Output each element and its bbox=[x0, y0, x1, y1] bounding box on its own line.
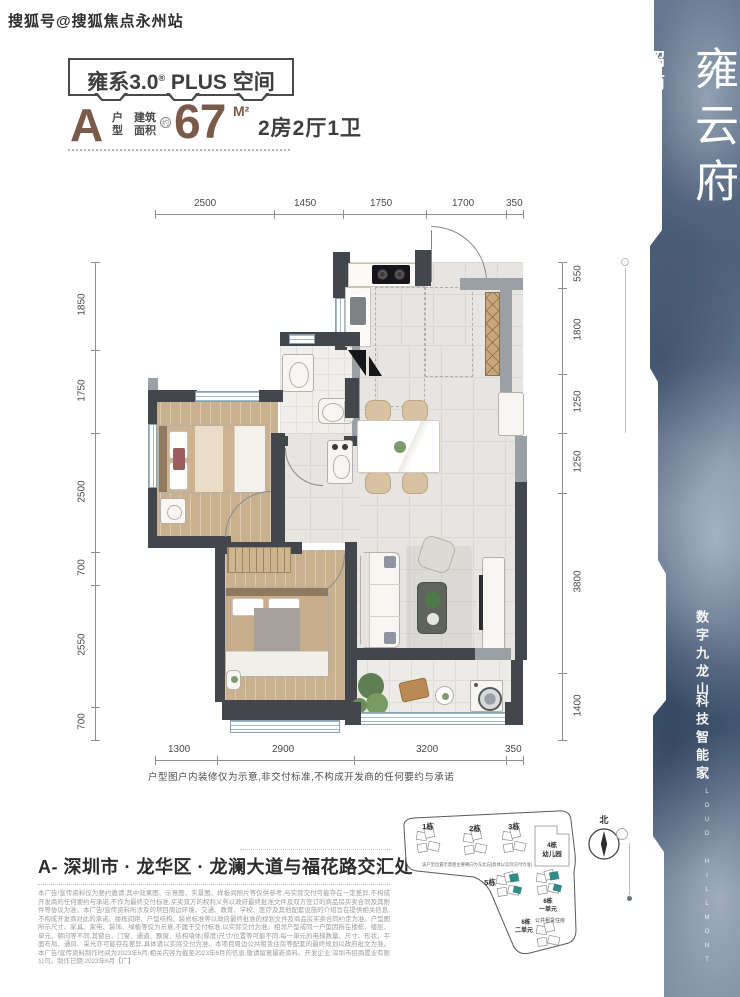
wall bbox=[148, 402, 157, 424]
tv-console bbox=[482, 557, 505, 650]
dim-label: 1750 bbox=[370, 198, 392, 209]
building-4-label: 4栋 bbox=[547, 840, 558, 849]
brand-banner: 招商 ❖ CLOUD HILLMONT 雍云府 数字九龙山 科技智能家 CLOU… bbox=[628, 0, 740, 997]
dim-label: 700 bbox=[77, 700, 88, 744]
address-divider bbox=[240, 849, 390, 850]
brand-en-line1: CLOUD bbox=[640, 122, 646, 157]
bathroom-window bbox=[289, 334, 315, 344]
brand-name: 招商 bbox=[642, 50, 667, 96]
dim-label: 1700 bbox=[452, 198, 474, 209]
wall-gray bbox=[500, 290, 512, 392]
dim-label: 550 bbox=[573, 252, 584, 296]
north-arrow-icon bbox=[589, 829, 619, 859]
wall bbox=[515, 482, 527, 660]
deco-line bbox=[625, 268, 626, 433]
series-title: 雍系3.0® PLUS 空间 bbox=[87, 71, 275, 94]
brand-en-line2: HILLMONT bbox=[650, 122, 656, 178]
balcony-table bbox=[435, 686, 454, 705]
building-2-label: 2栋 bbox=[469, 823, 481, 833]
washing-machine bbox=[470, 680, 503, 712]
dim-label: 2550 bbox=[77, 623, 88, 667]
wall-gray bbox=[515, 436, 527, 482]
deco-line bbox=[629, 843, 630, 895]
deco-circle bbox=[621, 258, 629, 266]
plan-disclaimer: 户型图户内装修仅为示意,非交付标准,不构成开发商的任何要约与承诺 bbox=[148, 769, 454, 783]
deco-circle bbox=[616, 828, 628, 840]
wall bbox=[271, 433, 285, 543]
tall-cabinet bbox=[485, 292, 500, 376]
dim-label: 1400 bbox=[573, 684, 584, 728]
building-6a-sublabel: 一单元 bbox=[539, 905, 557, 913]
ceiling-dashed-outline bbox=[375, 287, 425, 407]
building-1-label: 1栋 bbox=[422, 821, 434, 831]
slogan-line1: 数字九龙山 bbox=[692, 610, 711, 700]
nightstand bbox=[160, 498, 186, 524]
wall bbox=[345, 702, 361, 725]
unit-type-label: 户型 bbox=[112, 112, 123, 138]
dim-label: 1750 bbox=[77, 369, 88, 413]
wall bbox=[505, 702, 523, 725]
building-6b-label: 6栋 bbox=[521, 918, 530, 926]
wall bbox=[259, 390, 283, 402]
ceiling-dashed-outline bbox=[425, 287, 473, 377]
rooms-summary: 2房2厅1卫 bbox=[258, 112, 362, 142]
north-label: 北 bbox=[599, 814, 608, 825]
balcony-window bbox=[360, 712, 507, 725]
bedside-stool bbox=[226, 670, 241, 690]
dim-label: 2500 bbox=[194, 198, 216, 209]
bedroom2-window bbox=[195, 391, 261, 402]
dim-label: 1250 bbox=[573, 380, 584, 424]
building-5-label: 5栋 bbox=[484, 877, 496, 887]
legal-text: 本广告/宣传资料仅为要约邀请,其中效果图、示意图、实景图、样板间照片等仅供参考,… bbox=[38, 890, 390, 967]
coffee-table bbox=[417, 582, 447, 634]
header-divider bbox=[68, 149, 290, 151]
kitchen-sink bbox=[348, 295, 368, 327]
dining-chair bbox=[402, 400, 428, 422]
slogan-line2: 科技智能家 bbox=[692, 694, 711, 784]
dim-label: 3800 bbox=[573, 560, 584, 604]
building-4-sublabel: 幼儿园 bbox=[542, 849, 562, 858]
dining-chair bbox=[365, 472, 391, 494]
bed bbox=[158, 425, 266, 493]
stove bbox=[372, 265, 410, 284]
dim-line-top bbox=[155, 214, 523, 215]
dim-label: 350 bbox=[505, 744, 522, 755]
wall bbox=[345, 378, 359, 418]
building-3-label: 3栋 bbox=[508, 821, 520, 831]
wall-gray bbox=[475, 648, 511, 660]
project-name: 雍云府 bbox=[680, 46, 740, 214]
deco-dot bbox=[627, 896, 632, 901]
dim-label: 1300 bbox=[168, 744, 190, 755]
master-window bbox=[230, 720, 340, 733]
dim-label: 1450 bbox=[294, 198, 316, 209]
dining-chair bbox=[365, 400, 391, 422]
dim-label: 1800 bbox=[573, 308, 584, 352]
dim-line-left bbox=[95, 262, 96, 740]
wardrobe bbox=[227, 547, 291, 573]
master-bed bbox=[225, 587, 329, 677]
area-label: 建筑面积 bbox=[134, 112, 156, 138]
dim-label: 1250 bbox=[573, 440, 584, 484]
series-title-box: 雍系3.0® PLUS 空间 bbox=[68, 58, 294, 96]
shoe-cabinet bbox=[498, 392, 524, 436]
dim-label: 700 bbox=[77, 546, 88, 590]
address: A- 深圳市 · 龙华区 · 龙澜大道与福花路交汇处 bbox=[38, 853, 413, 879]
sofa bbox=[360, 552, 400, 648]
dining-table bbox=[357, 420, 440, 473]
address-divider bbox=[38, 884, 390, 885]
bedroom2-side-window bbox=[148, 424, 157, 488]
site-map: 1栋 2栋 3栋 4栋 幼儿园 5栋 6栋 一单元 公共租赁住房 6栋 二单元 … bbox=[390, 798, 625, 966]
building-6b-sublabel: 二单元 bbox=[515, 926, 533, 934]
wall bbox=[148, 390, 197, 402]
wall bbox=[215, 542, 225, 702]
dim-label: 2500 bbox=[77, 470, 88, 514]
dim-label: 1850 bbox=[77, 283, 88, 327]
area-unit: M² bbox=[233, 103, 249, 119]
area-value: 67 bbox=[174, 95, 225, 150]
dim-line-right bbox=[562, 262, 563, 740]
floor-plan bbox=[148, 250, 528, 742]
dim-label: 3200 bbox=[416, 744, 438, 755]
tv bbox=[479, 575, 483, 630]
approx-badge: 约 bbox=[160, 117, 171, 128]
wall-gray bbox=[460, 278, 523, 290]
wall bbox=[222, 700, 345, 720]
sitemap-note: 该户型位置示意图主要朝向为东北向(具体以实际交付为准) bbox=[422, 861, 533, 868]
dim-label: 350 bbox=[506, 198, 523, 209]
wall bbox=[345, 542, 357, 720]
unit-letter: A bbox=[70, 98, 103, 152]
laundry-cabinet bbox=[327, 440, 353, 484]
bathroom-vanity bbox=[282, 354, 314, 392]
public-housing-label: 公共租赁住房 bbox=[535, 917, 565, 924]
dining-chair bbox=[402, 472, 428, 494]
wall bbox=[415, 250, 431, 286]
brand-logo-icon: ❖ bbox=[644, 102, 655, 116]
building-6a-label: 6栋 bbox=[543, 897, 552, 905]
dim-label: 2900 bbox=[272, 744, 294, 755]
watermark: 搜狐号@搜狐焦点永州站 bbox=[8, 10, 184, 31]
slogan-en: CLOUD HILLMONT bbox=[704, 775, 710, 971]
wall bbox=[357, 648, 475, 660]
dim-line-bottom bbox=[155, 760, 523, 761]
wall bbox=[148, 488, 157, 538]
